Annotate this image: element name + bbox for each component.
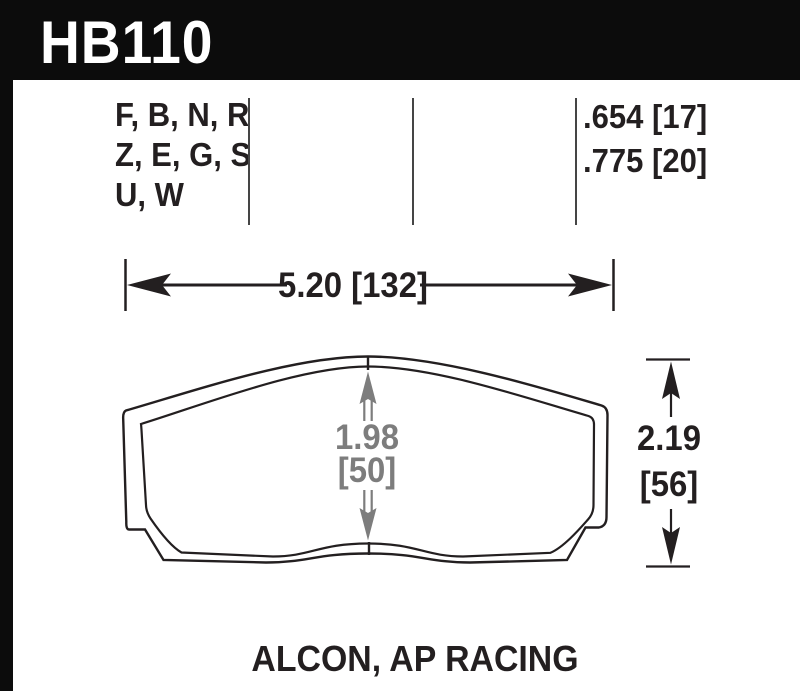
- center-height-mm-label: [50]: [338, 451, 396, 490]
- application-caption: ALCON, AP RACING: [251, 638, 578, 680]
- overall-height-dimension: 2.19 [56]: [637, 360, 701, 567]
- width-dimension: 5.20 [132]: [126, 259, 614, 311]
- overall-height-mm-label: [56]: [640, 465, 698, 504]
- width-dimension-label: 5.20 [132]: [278, 266, 428, 305]
- catalog-page: HB110 F, B, N, R Z, E, G, S U, W .654 [1…: [0, 0, 800, 691]
- center-dim-arrow-up-icon: [360, 372, 377, 405]
- center-dim-arrow-down-icon: [360, 508, 377, 541]
- center-height-dimension: 1.98 [50]: [335, 372, 399, 541]
- overall-height-in-label: 2.19: [637, 419, 701, 458]
- pad-technical-drawing: 5.20 [132] 1.98 [50]: [0, 0, 800, 691]
